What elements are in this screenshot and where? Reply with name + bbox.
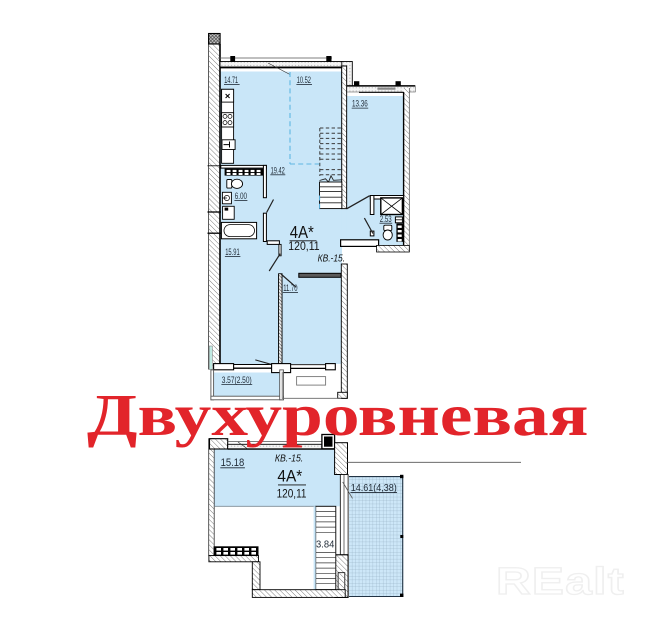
svg-text:6.00: 6.00 xyxy=(235,191,247,201)
svg-text:13.36: 13.36 xyxy=(352,99,368,109)
svg-text:11.70: 11.70 xyxy=(283,283,297,293)
svg-text:10.52: 10.52 xyxy=(297,75,311,85)
svg-text:3.84: 3.84 xyxy=(316,539,334,551)
svg-text:2.53: 2.53 xyxy=(380,214,392,224)
svg-text:15.91: 15.91 xyxy=(225,247,240,257)
svg-text:Двухуровневая: Двухуровневая xyxy=(87,382,589,448)
svg-text:120,11: 120,11 xyxy=(277,487,307,501)
svg-text:КВ.-15.: КВ.-15. xyxy=(275,454,303,465)
svg-text:15.18: 15.18 xyxy=(221,457,245,469)
svg-text:4А*: 4А* xyxy=(277,467,302,485)
svg-text:14.71: 14.71 xyxy=(224,75,238,85)
svg-text:КВ.-15.: КВ.-15. xyxy=(318,254,346,265)
svg-text:4А*: 4А* xyxy=(290,222,314,242)
svg-text:REalt: REalt xyxy=(496,561,625,603)
svg-text:19.42: 19.42 xyxy=(271,165,285,175)
svg-text:120,11: 120,11 xyxy=(288,241,319,253)
